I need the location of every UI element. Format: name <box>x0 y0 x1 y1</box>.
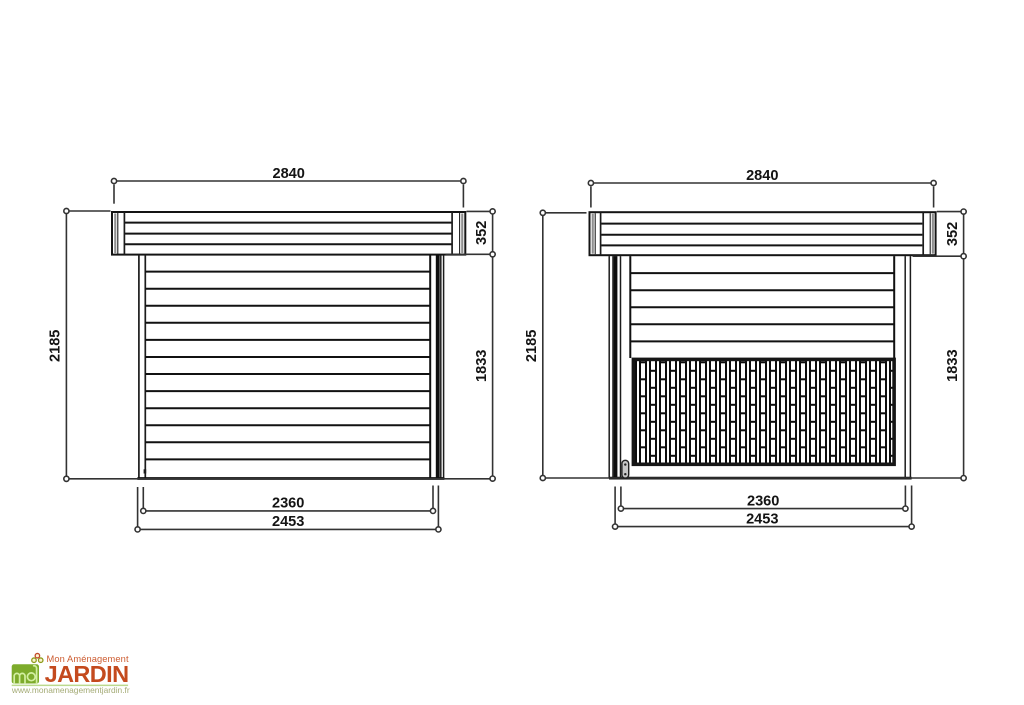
svg-text:2840: 2840 <box>272 166 304 182</box>
svg-text:2360: 2360 <box>272 496 304 512</box>
svg-text:2840: 2840 <box>746 168 778 184</box>
svg-text:JARDIN: JARDIN <box>45 661 129 687</box>
svg-text:2453: 2453 <box>272 514 304 530</box>
svg-text:2360: 2360 <box>747 493 779 509</box>
svg-text:352: 352 <box>474 221 490 245</box>
svg-text:2185: 2185 <box>524 330 540 362</box>
svg-text:1833: 1833 <box>474 350 490 382</box>
svg-text:www.monamenagementjardin.fr: www.monamenagementjardin.fr <box>11 685 130 695</box>
svg-text:352: 352 <box>945 222 961 246</box>
svg-text:1833: 1833 <box>945 349 961 381</box>
svg-text:2453: 2453 <box>746 511 778 527</box>
svg-text:2185: 2185 <box>48 330 64 362</box>
